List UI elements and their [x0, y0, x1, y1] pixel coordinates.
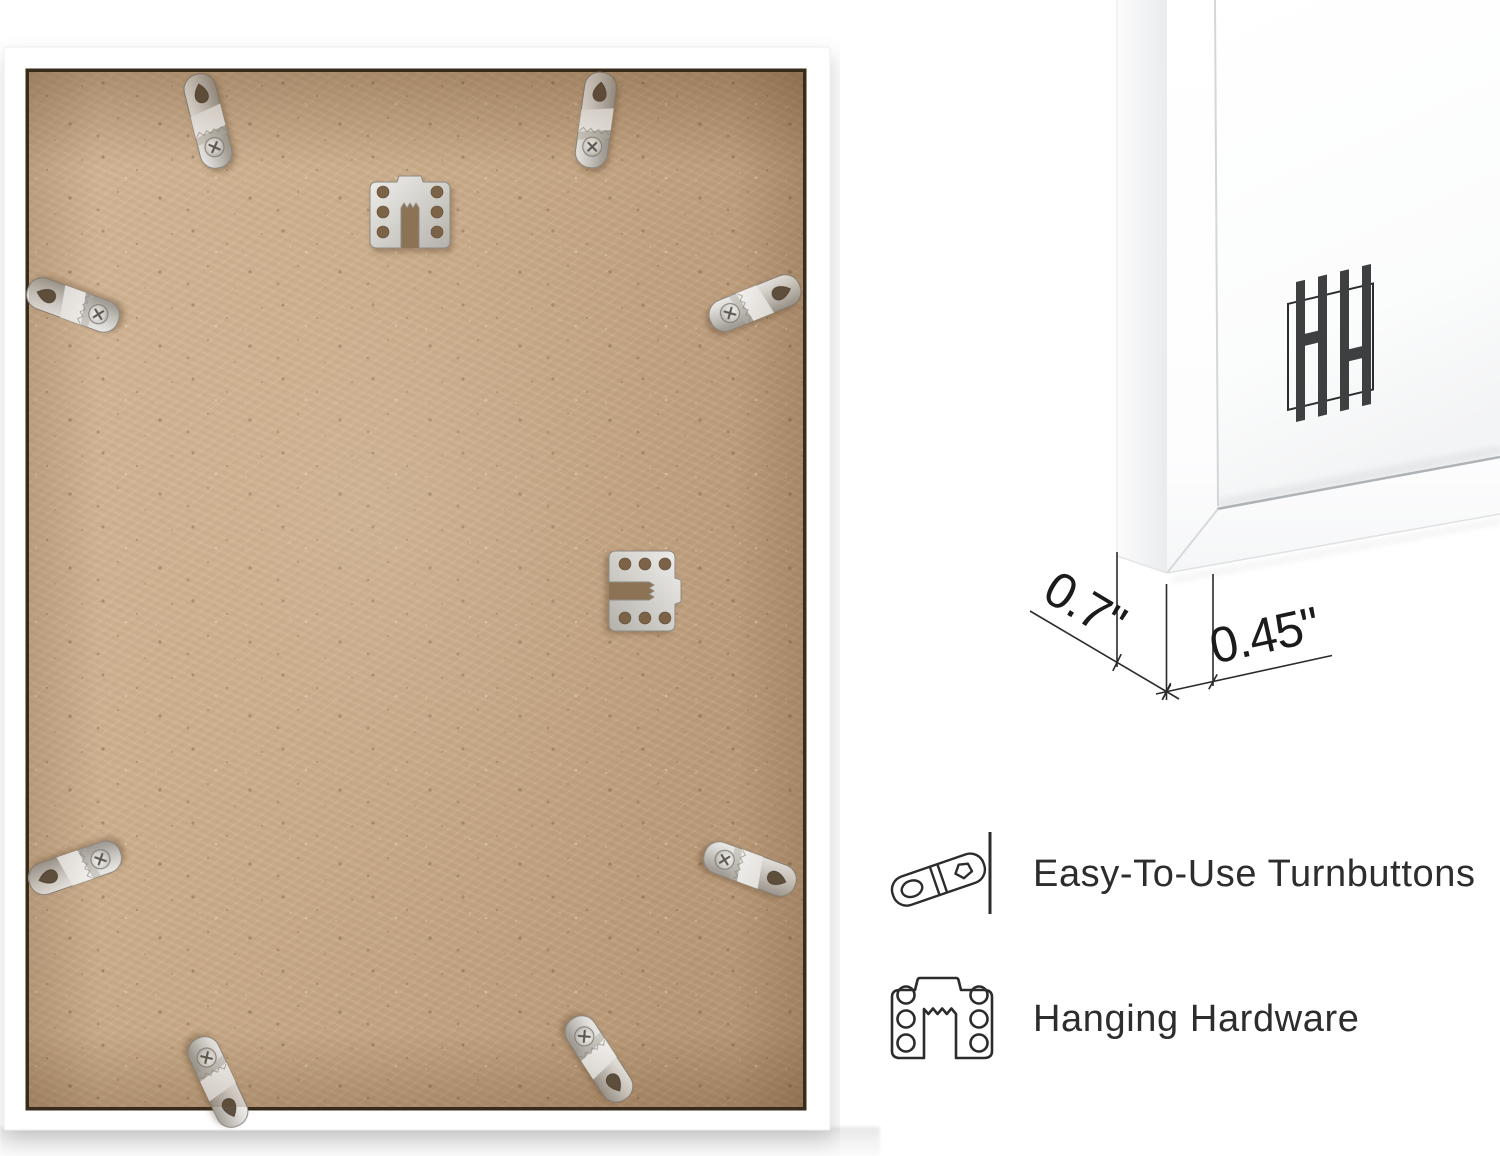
sawtooth-hanger-photo-2 [609, 551, 681, 631]
feature-row-hanging-hardware: Hanging Hardware [884, 970, 1484, 1066]
dimension-label-depth: 0.7" [1035, 560, 1135, 651]
dimension-label-face: 0.45" [1205, 596, 1325, 674]
feature-label: Hanging Hardware [1033, 997, 1359, 1041]
turnbutton-outline-icon [884, 826, 996, 918]
sawtooth-hanger-photo-1 [370, 176, 450, 248]
product-image: 0.7" 0.45" Easy-To-Use Turnbuttons Hangi… [0, 0, 1500, 1156]
hanging-hardware-outline-icon [888, 972, 998, 1066]
frame-corner-closeup: 0.7" 0.45" [1020, 0, 1500, 760]
frame-side-face [1117, 0, 1167, 573]
frame-back-photo [0, 0, 840, 1156]
mat-area [1215, 0, 1500, 509]
feature-row-turnbuttons: Easy-To-Use Turnbuttons [884, 826, 1484, 922]
feature-label: Easy-To-Use Turnbuttons [1033, 852, 1476, 896]
